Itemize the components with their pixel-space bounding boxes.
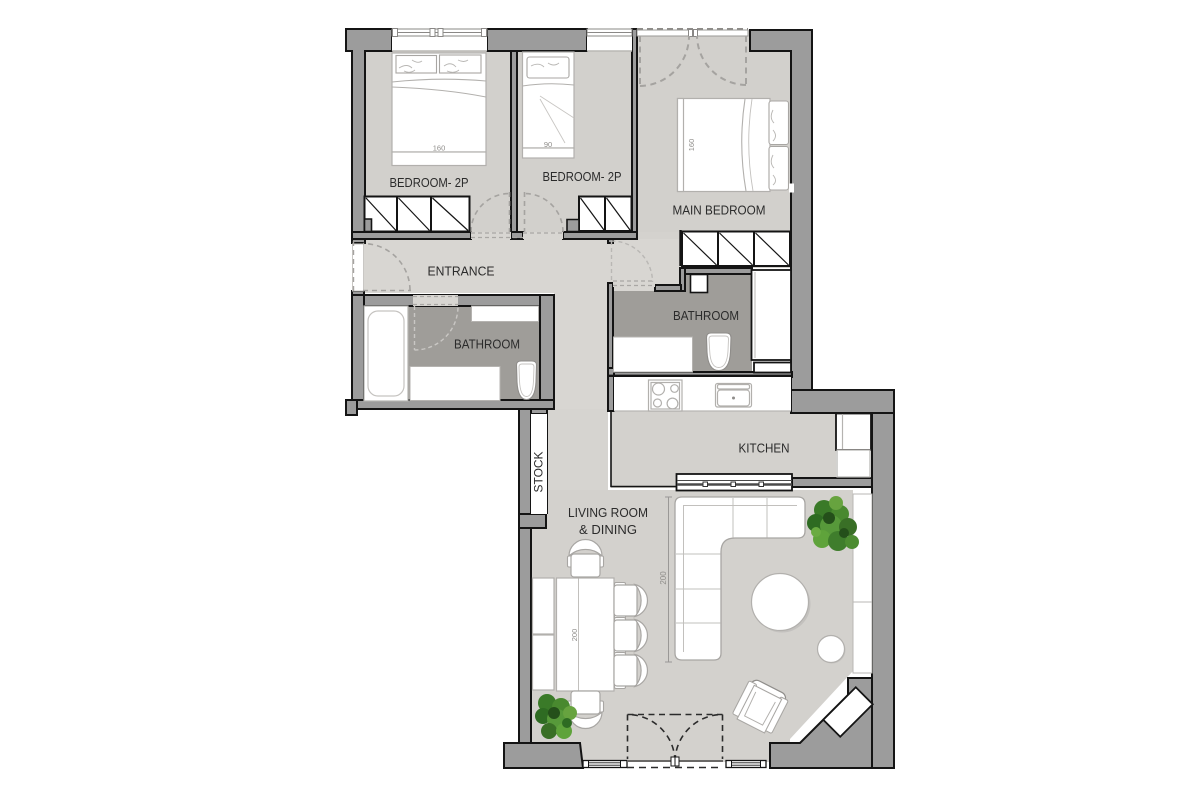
svg-text:BEDROOM- 2P: BEDROOM- 2P — [390, 175, 469, 190]
svg-text:STOCK: STOCK — [532, 452, 546, 493]
svg-text:200: 200 — [570, 629, 579, 642]
svg-text:BATHROOM: BATHROOM — [673, 308, 739, 323]
svg-text:LIVING ROOM: LIVING ROOM — [568, 505, 648, 520]
svg-text:ENTRANCE: ENTRANCE — [428, 264, 495, 279]
svg-text:200: 200 — [659, 571, 668, 585]
svg-text:KITCHEN: KITCHEN — [739, 441, 790, 456]
svg-text:160: 160 — [687, 139, 696, 152]
svg-text:MAIN BEDROOM: MAIN BEDROOM — [673, 203, 766, 218]
svg-text:BATHROOM: BATHROOM — [454, 337, 520, 352]
svg-text:160: 160 — [433, 144, 446, 153]
svg-text:90: 90 — [544, 140, 552, 149]
svg-text:& DINING: & DINING — [579, 522, 637, 537]
svg-text:BEDROOM- 2P: BEDROOM- 2P — [543, 169, 622, 184]
